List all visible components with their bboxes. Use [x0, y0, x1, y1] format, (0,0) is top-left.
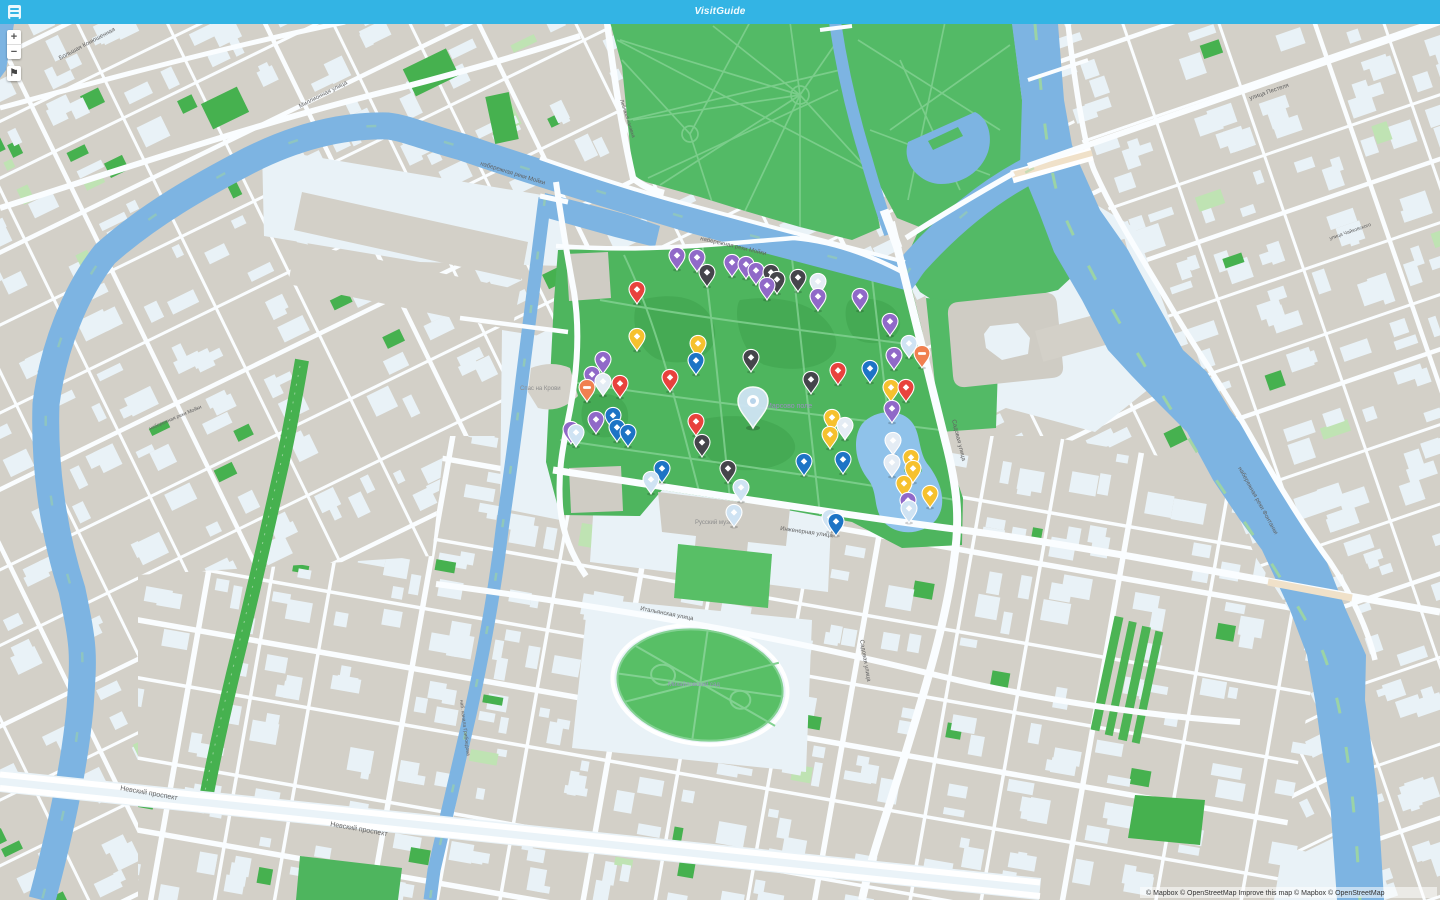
svg-text:Марсово поле: Марсово поле: [766, 403, 812, 410]
svg-text:© Mapbox © OpenStreetMap Impro: © Mapbox © OpenStreetMap Improve this ma…: [1146, 889, 1385, 897]
svg-text:Михайловский сад: Михайловский сад: [668, 681, 720, 688]
svg-text:Спас на Крови: Спас на Крови: [520, 386, 561, 392]
